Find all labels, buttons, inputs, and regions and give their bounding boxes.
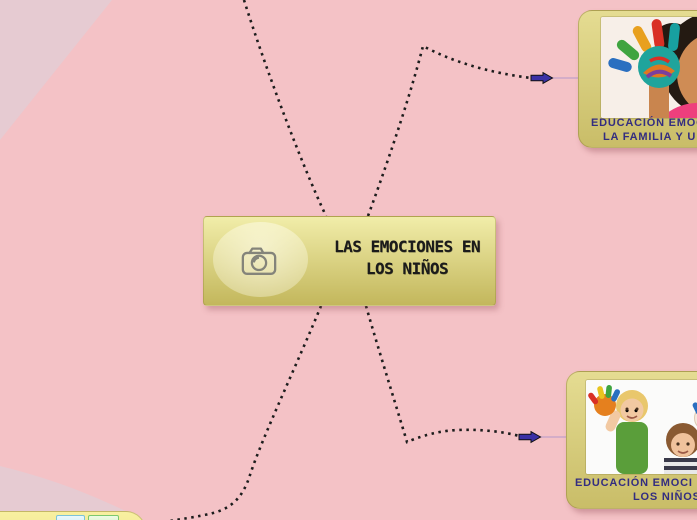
central-node-title-line1: LAS EMOCIONES EN — [322, 236, 492, 258]
node-label-familia-line1: EDUCACIÓN EMOC — [591, 117, 697, 129]
node-label-familia-line2: LA FAMILIA Y U — [603, 131, 696, 143]
photo-girl-rainbow-hand — [601, 17, 697, 118]
central-node-las-emociones[interactable]: LAS EMOCIONES EN LOS NIÑOS — [203, 216, 496, 306]
node-label-ninos-line2: LOS NIÑOS — [633, 491, 697, 503]
photo-girl-rainbow-hand-art — [601, 17, 697, 118]
thumbnail-blue-image — [56, 515, 85, 520]
node-label-ninos-line1: EDUCACIÓN EMOCI — [575, 477, 693, 489]
connector-bottom-right — [366, 306, 519, 442]
central-node-title-line2: LOS NIÑOS — [322, 258, 492, 280]
camera-icon[interactable] — [240, 245, 278, 277]
connector-top-left — [244, 0, 326, 216]
thumbnail-green-image — [88, 515, 119, 520]
photo-children-painted-hands — [586, 380, 697, 474]
connector-bottom-left — [158, 306, 321, 520]
mindmap-canvas[interactable]: LAS EMOCIONES EN LOS NIÑOS — [0, 0, 697, 520]
photo-children-painted-hands-art — [586, 380, 697, 474]
connector-top-right — [368, 46, 531, 216]
arrowhead-bottom-right-icon — [519, 432, 541, 443]
central-node-title: LAS EMOCIONES EN LOS NIÑOS — [322, 236, 492, 280]
arrowhead-top-right-icon — [531, 73, 553, 84]
